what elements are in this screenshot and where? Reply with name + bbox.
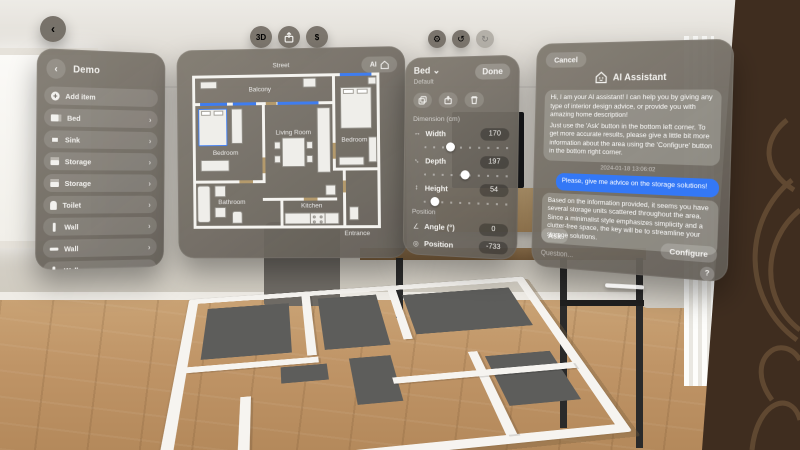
chair[interactable] <box>306 141 313 149</box>
slider-thumb[interactable] <box>446 142 455 151</box>
question-input[interactable] <box>541 250 630 264</box>
wall-vertical-icon <box>52 266 55 270</box>
storage-icon <box>50 157 59 165</box>
chevron-right-icon: › <box>149 115 151 124</box>
house-smile-icon <box>595 71 608 84</box>
chair[interactable] <box>274 155 281 163</box>
wall-segment[interactable] <box>263 197 337 200</box>
project-title: Demo <box>73 64 100 76</box>
width-label: Width <box>425 129 476 138</box>
assistant-message-text: Hi, I am your AI assistant! I can help y… <box>550 94 715 122</box>
configure-button[interactable]: Configure <box>660 243 717 263</box>
bathroom-label: Bathroom <box>218 199 245 206</box>
floorplan-canvas[interactable]: Street <box>188 60 393 246</box>
wall-segment[interactable] <box>343 171 347 229</box>
sidebar-item-bed[interactable]: Bed › <box>44 108 158 128</box>
slider-track[interactable] <box>424 146 509 149</box>
depth-slider[interactable] <box>424 168 509 180</box>
chevron-right-icon: › <box>148 242 150 251</box>
sidebar-panel: ‹ Demo + Add item Bed › Sink › Storage ›… <box>35 48 165 270</box>
chair[interactable] <box>274 141 281 149</box>
bedroom-right-label: Bedroom <box>341 136 367 143</box>
balcony-item[interactable] <box>200 81 217 89</box>
redo-button[interactable]: ↻ <box>476 30 494 48</box>
position-section-title: Position <box>412 208 508 219</box>
duplicate-button[interactable] <box>413 93 432 108</box>
door-marker[interactable] <box>343 180 346 192</box>
item-label: Toilet <box>63 200 143 209</box>
door-marker[interactable] <box>239 180 253 183</box>
angle-icon: ∠ <box>412 222 421 230</box>
chevron-right-icon: › <box>149 136 151 145</box>
sidebar-item-wall[interactable]: Wall › <box>43 217 157 236</box>
window-marker[interactable] <box>233 102 256 105</box>
sidebar-item-toilet[interactable]: Toilet › <box>43 196 157 214</box>
stove[interactable] <box>310 212 326 224</box>
share-button[interactable] <box>278 26 300 48</box>
add-item-button[interactable]: + Add item <box>44 86 158 107</box>
fridge[interactable] <box>325 185 336 196</box>
chevron-right-icon: › <box>148 200 150 209</box>
position-label: Position <box>424 239 475 251</box>
model-room-floor <box>402 288 533 335</box>
height-icon: ↕ <box>412 184 421 191</box>
wall-segment[interactable] <box>194 225 381 229</box>
wardrobe[interactable] <box>368 136 377 162</box>
sink-icon <box>51 136 60 143</box>
kitchen-label: Kitchen <box>301 203 322 210</box>
width-value[interactable]: 170 <box>480 128 509 141</box>
duplicate-icon <box>418 96 427 105</box>
wall-segment[interactable] <box>280 198 283 229</box>
window-marker[interactable] <box>200 103 227 106</box>
sink[interactable] <box>215 207 227 218</box>
assistant-message: Hi, I am your AI assistant! I can help y… <box>543 89 722 166</box>
model-room-floor <box>200 303 291 360</box>
item-label: Bed <box>67 113 144 123</box>
height-value[interactable]: 54 <box>480 183 509 196</box>
washer[interactable] <box>214 185 226 197</box>
window-marker[interactable] <box>277 101 318 105</box>
cancel-button[interactable]: Cancel <box>546 52 587 68</box>
sidebar-back-button[interactable]: ‹ <box>46 58 65 79</box>
sidebar-item-storage[interactable]: Storage › <box>44 152 158 171</box>
living-room-label: Living Room <box>276 129 311 136</box>
wall-segment[interactable] <box>193 180 265 184</box>
selected-item-variant: Default <box>414 78 440 86</box>
wall-segment[interactable] <box>333 167 380 170</box>
bathtub[interactable] <box>197 186 211 223</box>
position-icon: ◎ <box>411 239 420 247</box>
slider-thumb[interactable] <box>460 170 469 179</box>
assistant-title: AI Assistant <box>613 71 667 82</box>
model-room-floor <box>281 363 329 383</box>
add-item-label: Add item <box>65 91 151 102</box>
item-label: Storage <box>65 157 143 166</box>
share-icon <box>284 32 294 43</box>
chevron-right-icon: › <box>148 221 150 230</box>
bed-selected[interactable] <box>198 109 227 147</box>
inspector-panel: Bed ⌄ Default Done Dimension (c <box>403 55 520 261</box>
assistant-message-text: Just use the 'Ask' button in the bottom … <box>549 122 714 161</box>
dining-table[interactable] <box>282 137 306 167</box>
undo-icon: ↺ <box>457 34 465 45</box>
model-wall <box>301 296 316 356</box>
chevron-right-icon: › <box>148 179 150 188</box>
item-label: Storage <box>65 179 143 188</box>
trash-icon <box>470 95 479 104</box>
door-marker[interactable] <box>262 157 265 173</box>
height-label: Height <box>425 184 476 195</box>
undo-button[interactable]: ↺ <box>452 30 470 48</box>
wall-vertical-icon <box>53 222 56 231</box>
slider-thumb[interactable] <box>430 196 439 205</box>
toilet[interactable] <box>232 211 243 224</box>
model-room-floor <box>318 295 391 350</box>
depth-value[interactable]: 197 <box>480 156 509 169</box>
ask-button[interactable]: Ask <box>541 228 568 244</box>
back-button[interactable]: ‹ <box>40 16 66 42</box>
dimension-section-title: Dimension (cm) <box>413 116 510 123</box>
done-button[interactable]: Done <box>475 63 510 79</box>
nightstand[interactable] <box>367 77 376 85</box>
balcony-label: Balcony <box>249 86 272 93</box>
delete-button[interactable] <box>465 92 485 108</box>
door-marker[interactable] <box>333 143 336 159</box>
wall-segment[interactable] <box>192 76 196 229</box>
wall-horizontal-icon <box>50 247 59 250</box>
dresser[interactable] <box>201 160 230 172</box>
stage: ‹ ‹ Demo + Add item Bed › Sink › Storage… <box>0 0 800 450</box>
gear-icon: ⚙ <box>433 34 441 45</box>
redo-icon: ↻ <box>481 34 489 45</box>
door-marker[interactable] <box>266 102 277 105</box>
position-value[interactable]: -733 <box>479 240 508 254</box>
chair[interactable] <box>306 155 313 163</box>
settings-button[interactable]: ⚙ <box>428 30 446 48</box>
model-wall <box>237 396 251 450</box>
window-marker[interactable] <box>340 73 372 77</box>
wardrobe[interactable] <box>231 108 243 144</box>
door-marker[interactable] <box>304 198 318 201</box>
desk-frame <box>560 300 644 306</box>
plus-icon: + <box>51 91 60 100</box>
item-label: Sink <box>65 135 143 145</box>
dresser[interactable] <box>339 156 365 165</box>
depth-label: Depth <box>425 156 476 166</box>
depth-icon: ↔ <box>413 157 422 164</box>
ai-assistant-panel: Cancel AI Assistant Hi, I am your AI ass… <box>531 39 734 283</box>
bed[interactable] <box>340 87 372 129</box>
currency-button[interactable]: $ <box>306 26 328 48</box>
help-button[interactable]: ? <box>700 266 715 281</box>
bed-icon <box>51 114 62 121</box>
floorplan-panel: AI Street <box>176 46 407 258</box>
sidebar-item-wall[interactable]: Wall › <box>43 238 157 258</box>
view-3d-button[interactable]: 3D <box>250 26 272 48</box>
bedroom-left-label: Bedroom <box>213 150 239 157</box>
entrance-label: Entrance <box>344 230 370 237</box>
angle-label: Angle (°) <box>424 222 475 233</box>
chevron-right-icon: › <box>149 158 151 167</box>
storage-icon <box>50 179 59 187</box>
width-icon: ↔ <box>413 130 422 137</box>
sidebar-item-storage[interactable]: Storage › <box>43 174 157 192</box>
item-label: Wall <box>64 221 142 231</box>
item-label: Wall <box>64 243 142 253</box>
balcony-item[interactable] <box>303 78 317 88</box>
toilet-icon <box>50 200 57 209</box>
entrance-cabinet[interactable] <box>349 206 359 220</box>
street-label: Street <box>272 62 289 69</box>
box-button[interactable] <box>439 92 458 107</box>
angle-value[interactable]: 0 <box>479 223 508 237</box>
box-icon <box>444 95 453 104</box>
sidebar-item-sink[interactable]: Sink › <box>44 130 158 149</box>
width-slider[interactable] <box>424 141 509 152</box>
sofa[interactable] <box>317 107 331 173</box>
selected-item-dropdown[interactable]: Bed ⌄ <box>414 65 441 77</box>
height-slider[interactable] <box>424 196 509 209</box>
